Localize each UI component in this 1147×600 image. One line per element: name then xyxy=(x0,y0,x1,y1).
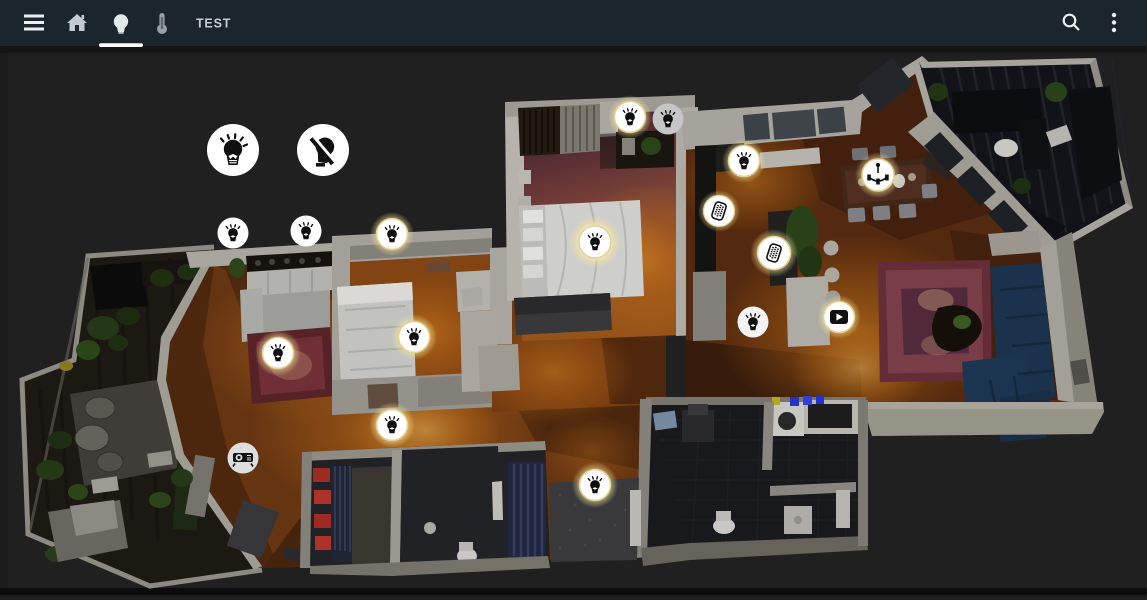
svg-text:TEST: TEST xyxy=(196,17,231,31)
